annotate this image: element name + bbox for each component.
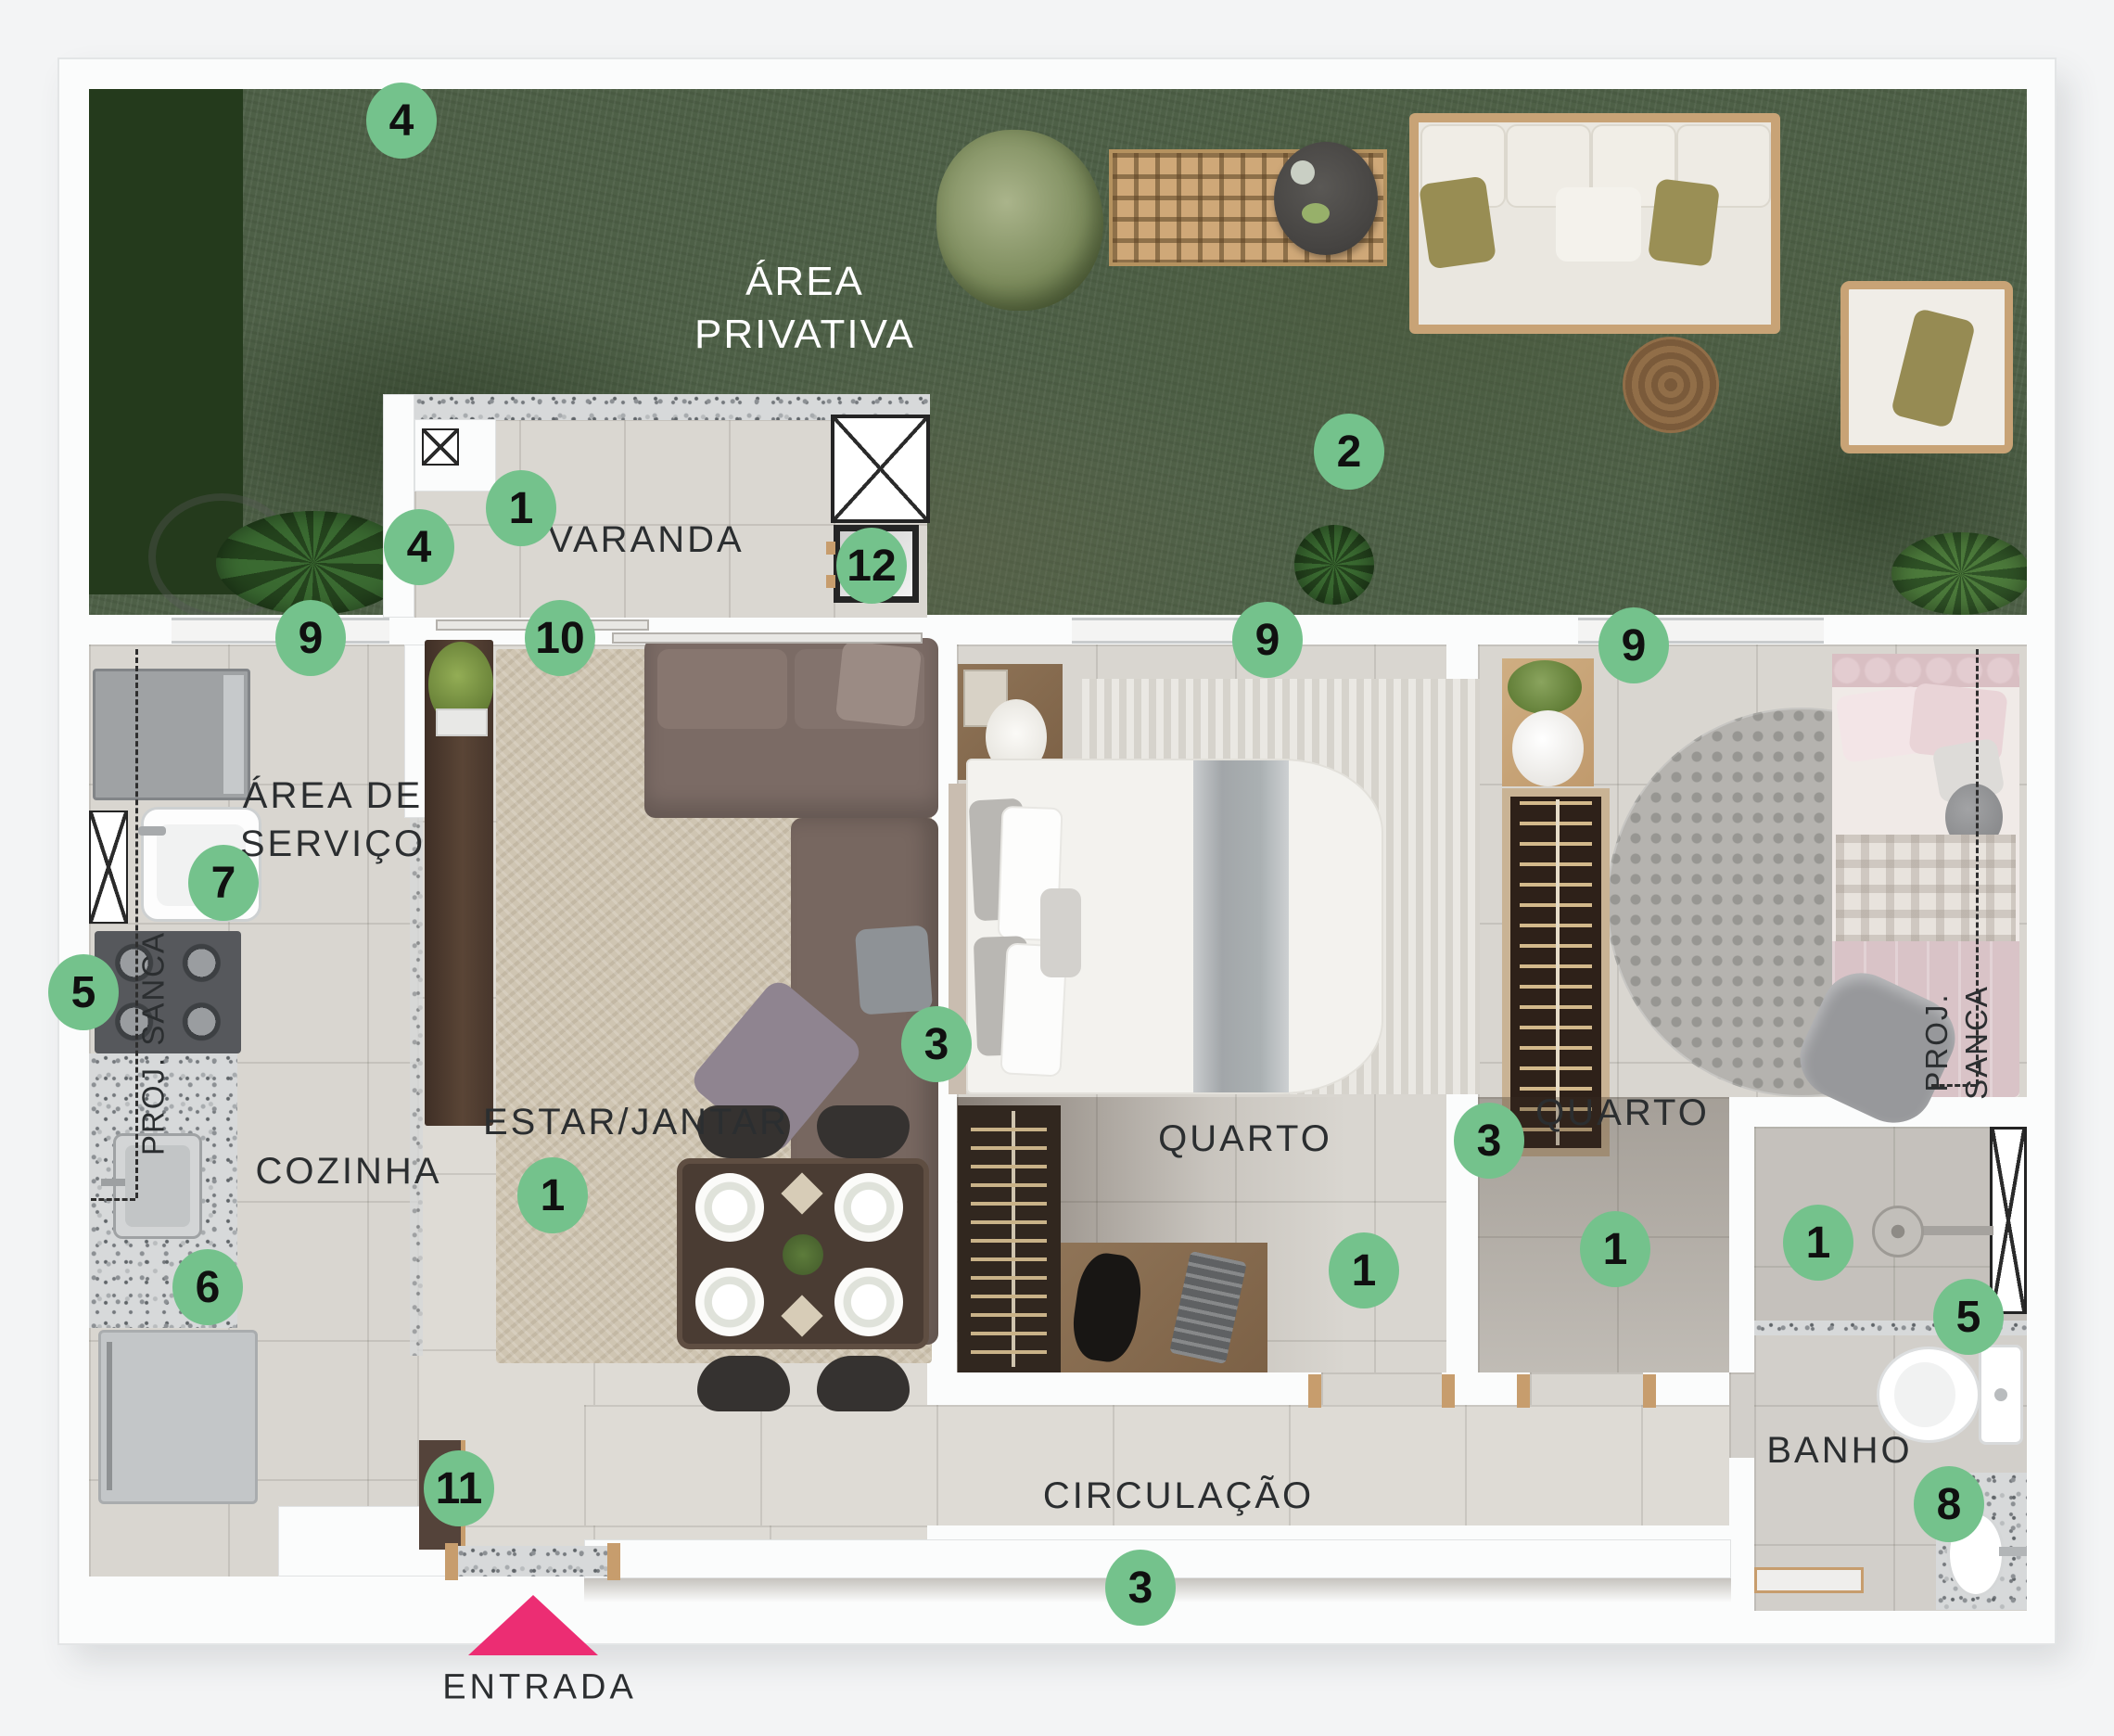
room-label-quarto-1: QUARTO xyxy=(1158,1115,1332,1163)
bed1-lumbar-pillow xyxy=(1040,888,1081,977)
marker-11-entrance-door: 11 xyxy=(424,1450,494,1526)
shower-arm-icon xyxy=(1919,1226,1993,1235)
room-label-area-privativa: ÁREA PRIVATIVA xyxy=(694,255,915,361)
napkin xyxy=(781,1295,822,1336)
bed1-runner-blanket xyxy=(1193,760,1289,1092)
room-label-proj-sanca-left: PROJ. SANCA xyxy=(134,931,174,1155)
marker-3-bedrooms-wall: 3 xyxy=(1454,1103,1524,1179)
marker-9-bedroom2-window: 9 xyxy=(1598,607,1669,683)
dining-chair xyxy=(817,1105,910,1158)
faucet-icon xyxy=(138,826,166,836)
marker-8-bathroom-vanity: 8 xyxy=(1914,1466,1984,1542)
marker-1-living-floor: 1 xyxy=(517,1157,588,1233)
dining-chair xyxy=(817,1356,910,1411)
door-jamb xyxy=(445,1543,458,1580)
varanda-left-wall xyxy=(383,394,414,618)
shaft-x-icon xyxy=(422,428,459,466)
marker-3-bottom-wall: 3 xyxy=(1105,1550,1176,1626)
marker-1-bedroom2-floor: 1 xyxy=(1580,1211,1650,1287)
small-bush xyxy=(644,93,717,171)
outdoor-armchair xyxy=(1840,281,2013,453)
door-jamb xyxy=(1308,1374,1321,1408)
refrigerator xyxy=(98,1330,258,1504)
marker-6-kitchen-sink: 6 xyxy=(172,1249,243,1325)
service-shaft-x-icon xyxy=(89,811,128,924)
dining-chair xyxy=(697,1356,790,1411)
garden-tree xyxy=(936,130,1103,311)
door-jamb xyxy=(1643,1374,1656,1408)
door-jamb xyxy=(1442,1374,1455,1408)
marker-12-varanda-equipment: 12 xyxy=(836,528,907,604)
centerpiece-bowl xyxy=(783,1234,823,1275)
elevator-shaft-x-icon xyxy=(831,415,930,523)
room-label-circulacao: CIRCULAÇÃO xyxy=(1043,1472,1314,1520)
shower-head-icon xyxy=(1872,1206,1924,1257)
marker-3-living-bedroom-wall: 3 xyxy=(901,1006,972,1082)
tray-icon xyxy=(1291,160,1315,185)
equipment-tab xyxy=(826,542,835,555)
outdoor-coffee-table xyxy=(1274,142,1378,255)
marker-5-stove: 5 xyxy=(48,954,119,1030)
sofa-pillow xyxy=(855,925,933,1015)
fern-plant xyxy=(1891,532,2027,615)
bedroom1-door-opening xyxy=(1321,1372,1442,1405)
door-jamb xyxy=(607,1543,620,1580)
bag xyxy=(1068,1250,1145,1365)
marker-1-bathroom-floor: 1 xyxy=(1783,1205,1853,1281)
room-label-entrada: ENTRADA xyxy=(442,1665,637,1710)
bedroom2-door-opening xyxy=(1530,1372,1643,1405)
jute-rug xyxy=(1623,337,1719,433)
room-label-quarto-2: QUARTO xyxy=(1535,1089,1710,1137)
bedroom1-desk xyxy=(1061,1243,1267,1372)
fruit-bowl-icon xyxy=(1302,203,1330,223)
balcony-sliding-door-panel xyxy=(612,632,923,644)
proj-sanca-line-left-end xyxy=(91,1198,135,1201)
bathroom-door-leaf xyxy=(1754,1567,1864,1593)
room-label-area-de-servico: ÁREA DE SERVIÇO xyxy=(240,772,426,868)
bedroom1-wardrobe xyxy=(958,1105,1061,1372)
garden-grass xyxy=(89,89,2027,615)
room-label-varanda: VARANDA xyxy=(548,516,744,564)
shelf-plant xyxy=(1508,660,1582,714)
dining-table xyxy=(677,1158,929,1349)
garden-pot-b xyxy=(1294,525,1374,605)
marker-1-varanda-floor: 1 xyxy=(486,470,556,546)
marker-4-varanda-wall: 4 xyxy=(384,509,454,585)
marker-7-laundry-sink: 7 xyxy=(188,845,259,921)
bathroom-door-opening xyxy=(1729,1372,1754,1458)
keyboard xyxy=(1169,1251,1247,1364)
marker-10-balcony-sliding-door: 10 xyxy=(525,600,595,676)
marker-4-area-privativa-top: 4 xyxy=(366,83,437,159)
toilet-tank xyxy=(1979,1345,2023,1445)
kitchen-threshold-strip xyxy=(410,818,423,1356)
room-label-cozinha: COZINHA xyxy=(256,1147,442,1195)
washing-machine xyxy=(93,669,250,800)
marker-9-bedroom1-window: 9 xyxy=(1232,602,1303,678)
pouf xyxy=(1512,710,1584,786)
entrance-threshold xyxy=(456,1546,610,1576)
bathroom-shaft-x-icon xyxy=(1990,1127,2027,1314)
bed2-headboard xyxy=(1832,654,2019,687)
floor-plan: ÁREA PRIVATIVAVARANDAÁREA DE SERVIÇOPROJ… xyxy=(0,0,2114,1736)
entrance-arrow-icon xyxy=(468,1595,598,1655)
marker-5-shower-divider: 5 xyxy=(1933,1279,2004,1355)
sofa-pillow xyxy=(835,641,922,727)
bed2-gingham-blanket xyxy=(1836,835,2016,946)
room-label-banho: BANHO xyxy=(1766,1426,1912,1474)
napkin xyxy=(781,1172,822,1214)
equipment-tab xyxy=(826,575,835,588)
faucet-icon xyxy=(101,1179,125,1186)
plant-pot xyxy=(436,708,488,736)
marker-2-area-privativa-lawn: 2 xyxy=(1314,414,1384,490)
outdoor-sofa xyxy=(1409,113,1780,334)
room-label-estar-jantar: ESTAR/JANTAR xyxy=(483,1098,789,1146)
room-label-proj-sanca-right: PROJ. SANCA xyxy=(1917,964,1997,1121)
door-jamb xyxy=(1517,1374,1530,1408)
marker-9-service-window: 9 xyxy=(275,600,346,676)
marker-1-bedroom1-floor: 1 xyxy=(1329,1232,1399,1308)
basin-faucet-icon xyxy=(1999,1547,2027,1556)
